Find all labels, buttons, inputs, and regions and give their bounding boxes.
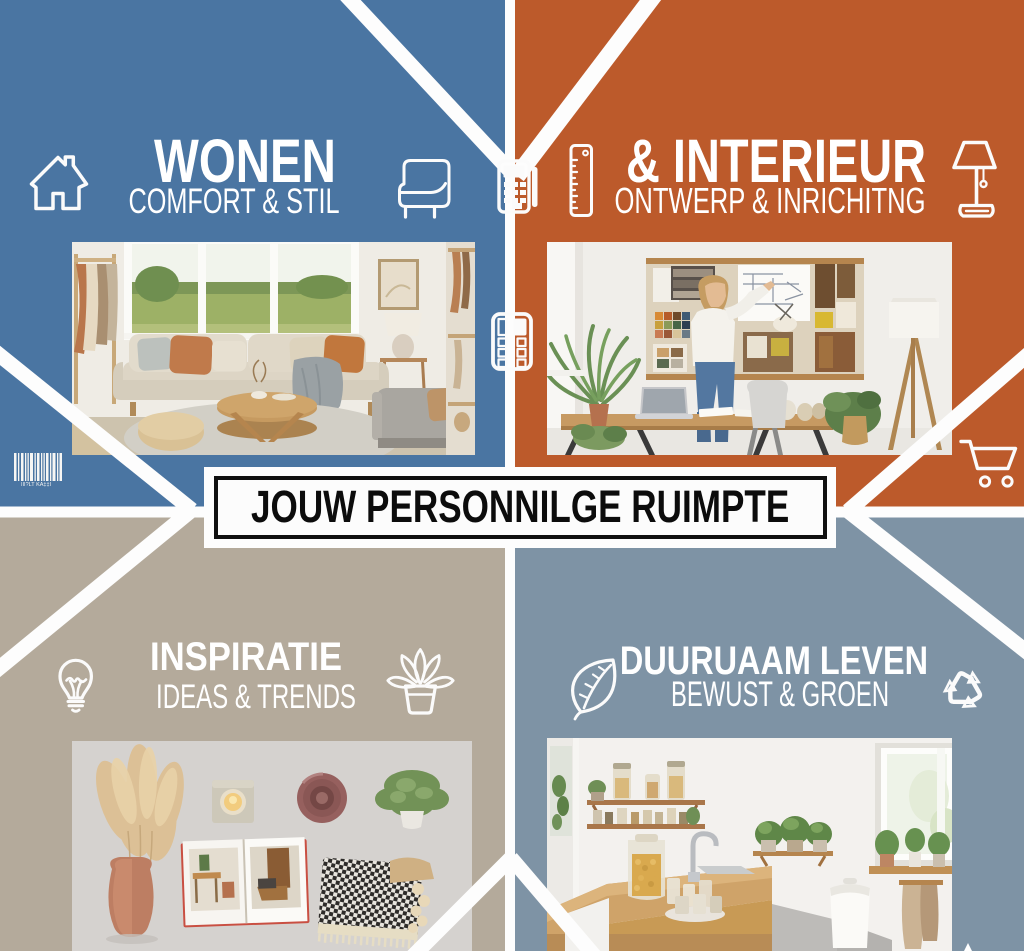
svg-text:III?LT KA‡‡I: III?LT KA‡‡I [21,482,52,488]
